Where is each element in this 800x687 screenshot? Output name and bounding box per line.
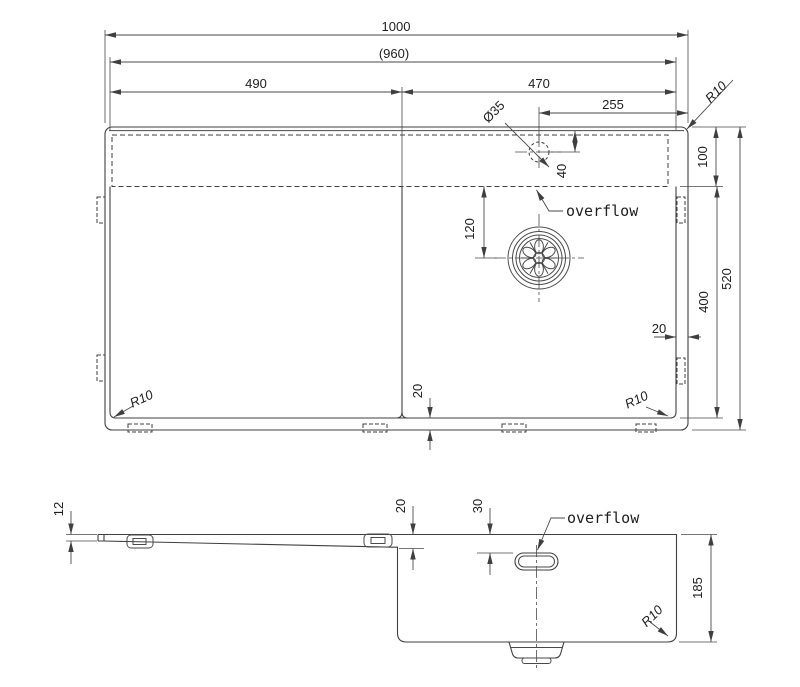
top-view-outer-rim [105,127,688,430]
extension-lines-top [105,30,746,430]
side-view: 12 20 30 185 R10 overflow [51,499,717,671]
bowl-divider-fillets [397,412,408,418]
dim-overall-height: 520 [719,268,734,290]
dim-rim-lip-height: 12 [51,502,66,516]
sink-technical-drawing: 1000 (960) 490 470 255 100 400 520 20 20… [0,0,800,687]
mounting-clips-top-view [97,197,685,432]
dim-rim-gap-bottom: 20 [410,384,425,398]
dim-corner-bottom-right: R10 [622,387,651,411]
dimensions-top-view: 1000 (960) 490 470 255 100 400 520 20 20… [105,19,740,450]
dim-opening-width: (960) [379,46,409,61]
side-left-lip [98,535,104,542]
overflow-channel-hidden [112,135,668,187]
drawing-svg: 1000 (960) 490 470 255 100 400 520 20 20… [0,0,800,687]
dim-overflow-top-offset: 30 [470,499,485,513]
dimensions-side-view: 12 20 30 185 R10 overflow [51,499,711,642]
dim-bowl-height: 400 [696,291,711,313]
side-bowl-outline [392,535,677,643]
dim-rim-gap-right: 20 [652,321,666,336]
extension-lines-side [66,535,717,643]
drain-assembly [494,214,584,302]
side-drainboard-surface [104,541,392,547]
dim-side-corner-radius: R10 [638,602,666,630]
dim-corner-top-right: R10 [702,78,730,106]
dim-tap-hole-offset: 255 [602,97,624,112]
dim-bowl-depth: 185 [690,577,705,599]
dim-tap-hole-diameter: Ø35 [480,98,508,126]
dim-drainboard-step-depth: 20 [393,499,408,513]
overflow-label-side-view: overflow [567,509,640,527]
top-view: 1000 (960) 490 470 255 100 400 520 20 20… [97,19,746,450]
dim-drain-offset: 120 [462,218,477,240]
dim-overflow-channel-height: 100 [695,146,710,168]
top-view-opening [110,187,676,419]
dim-tap-hole-down-offset: 40 [554,164,569,178]
dim-overall-width: 1000 [382,19,411,34]
dim-drainboard-width: 490 [245,76,267,91]
dim-bowl-width: 470 [528,76,550,91]
dim-corner-bottom-left: R10 [127,386,156,410]
overflow-label-top-view: overflow [566,202,639,220]
